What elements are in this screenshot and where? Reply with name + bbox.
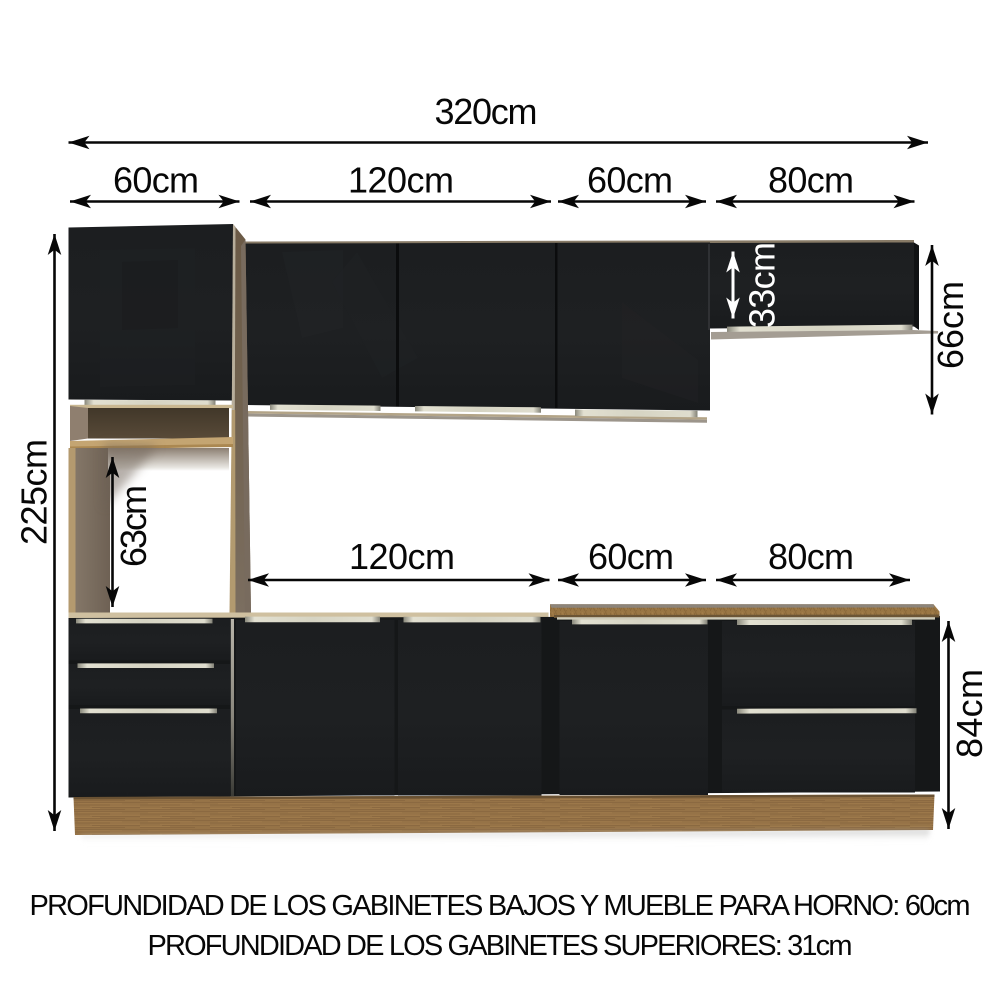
svg-text:60cm: 60cm [588,536,674,577]
svg-text:80cm: 80cm [768,160,854,201]
svg-text:63cm: 63cm [113,485,154,567]
svg-text:60cm: 60cm [113,160,199,201]
svg-text:PROFUNDIDAD DE LOS GABINETES S: PROFUNDIDAD DE LOS GABINETES SUPERIORES:… [148,930,853,962]
svg-text:66cm: 66cm [930,281,971,369]
svg-text:320cm: 320cm [435,91,538,132]
svg-text:33cm: 33cm [742,242,783,328]
svg-text:225cm: 225cm [14,439,55,545]
svg-text:120cm: 120cm [348,160,454,201]
svg-text:120cm: 120cm [349,536,455,577]
svg-text:84cm: 84cm [949,669,990,758]
svg-text:PROFUNDIDAD DE LOS GABINETES B: PROFUNDIDAD DE LOS GABINETES BAJOS Y MUE… [30,890,971,922]
svg-text:60cm: 60cm [587,160,673,201]
svg-text:80cm: 80cm [768,536,854,577]
